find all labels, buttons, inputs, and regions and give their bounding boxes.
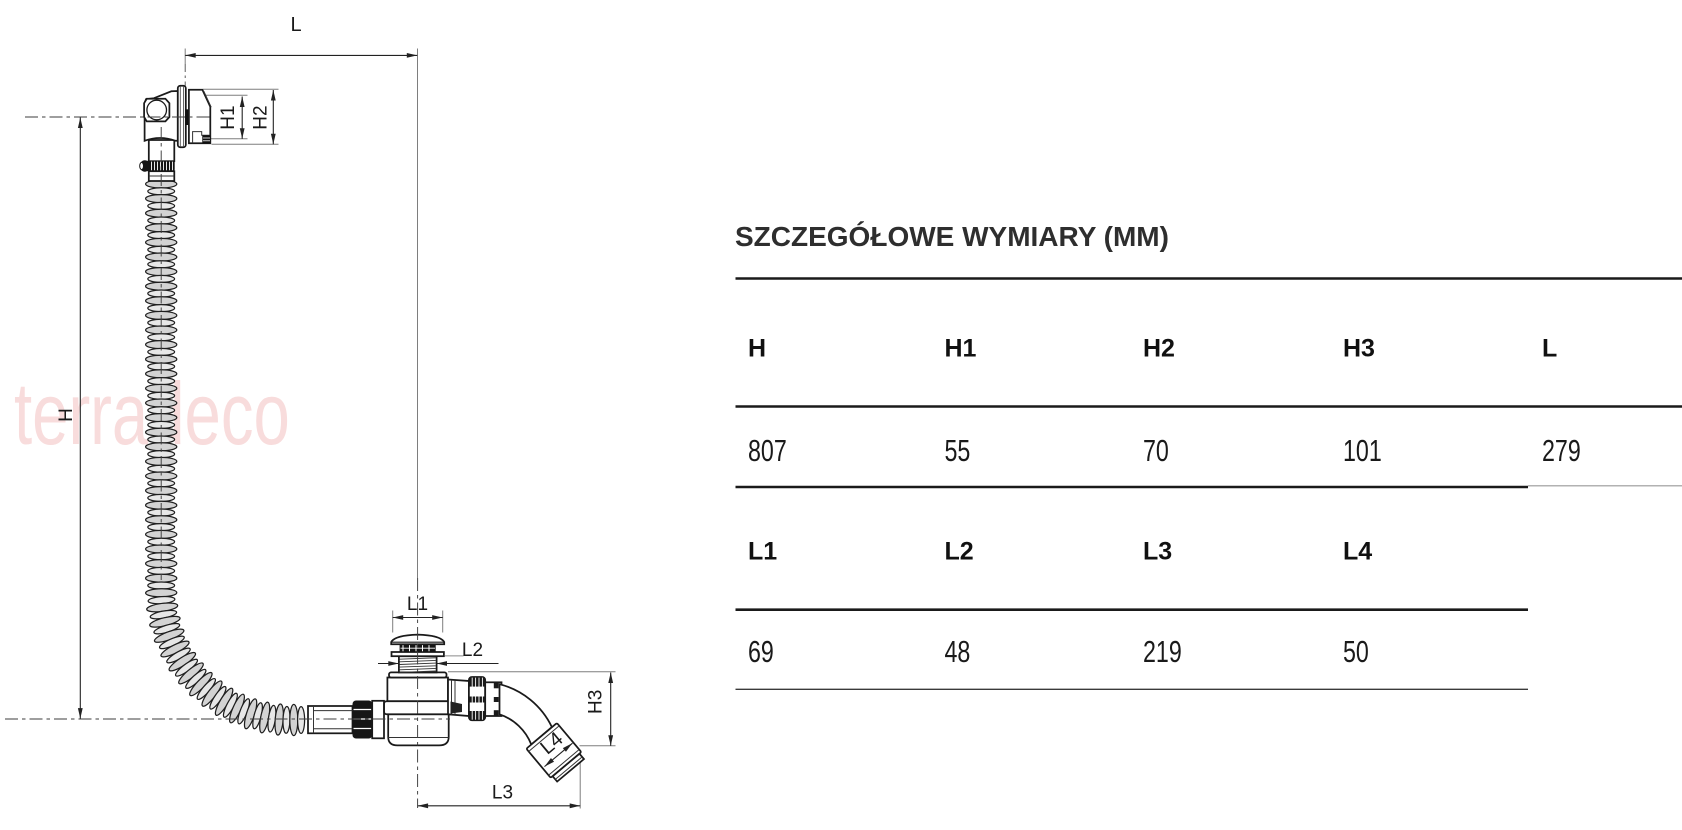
svg-text:L3: L3 [492, 783, 513, 804]
svg-text:H: H [56, 408, 77, 422]
svg-text:H1: H1 [945, 335, 977, 363]
svg-text:H: H [748, 335, 766, 363]
svg-text:H3: H3 [586, 690, 607, 714]
svg-text:H3: H3 [1343, 335, 1375, 363]
svg-text:279: 279 [1542, 433, 1581, 468]
svg-text:L1: L1 [407, 594, 428, 615]
svg-text:SZCZEGÓŁOWE WYMIARY (MM): SZCZEGÓŁOWE WYMIARY (MM) [735, 221, 1169, 252]
svg-text:L2: L2 [945, 538, 974, 566]
svg-text:L4: L4 [1343, 538, 1372, 566]
svg-text:55: 55 [945, 433, 971, 468]
svg-text:219: 219 [1143, 634, 1182, 669]
svg-text:L2: L2 [462, 640, 483, 661]
svg-text:H2: H2 [1143, 335, 1175, 363]
svg-text:L: L [290, 14, 301, 36]
svg-text:L3: L3 [1143, 538, 1172, 566]
svg-text:101: 101 [1343, 433, 1382, 468]
svg-text:70: 70 [1143, 433, 1169, 468]
svg-text:48: 48 [945, 634, 971, 669]
svg-text:69: 69 [748, 634, 774, 669]
svg-text:H1: H1 [218, 105, 239, 129]
svg-text:H2: H2 [251, 105, 272, 129]
svg-text:L1: L1 [748, 538, 777, 566]
svg-text:50: 50 [1343, 634, 1369, 669]
svg-text:807: 807 [748, 433, 787, 468]
svg-text:L: L [1542, 335, 1557, 363]
